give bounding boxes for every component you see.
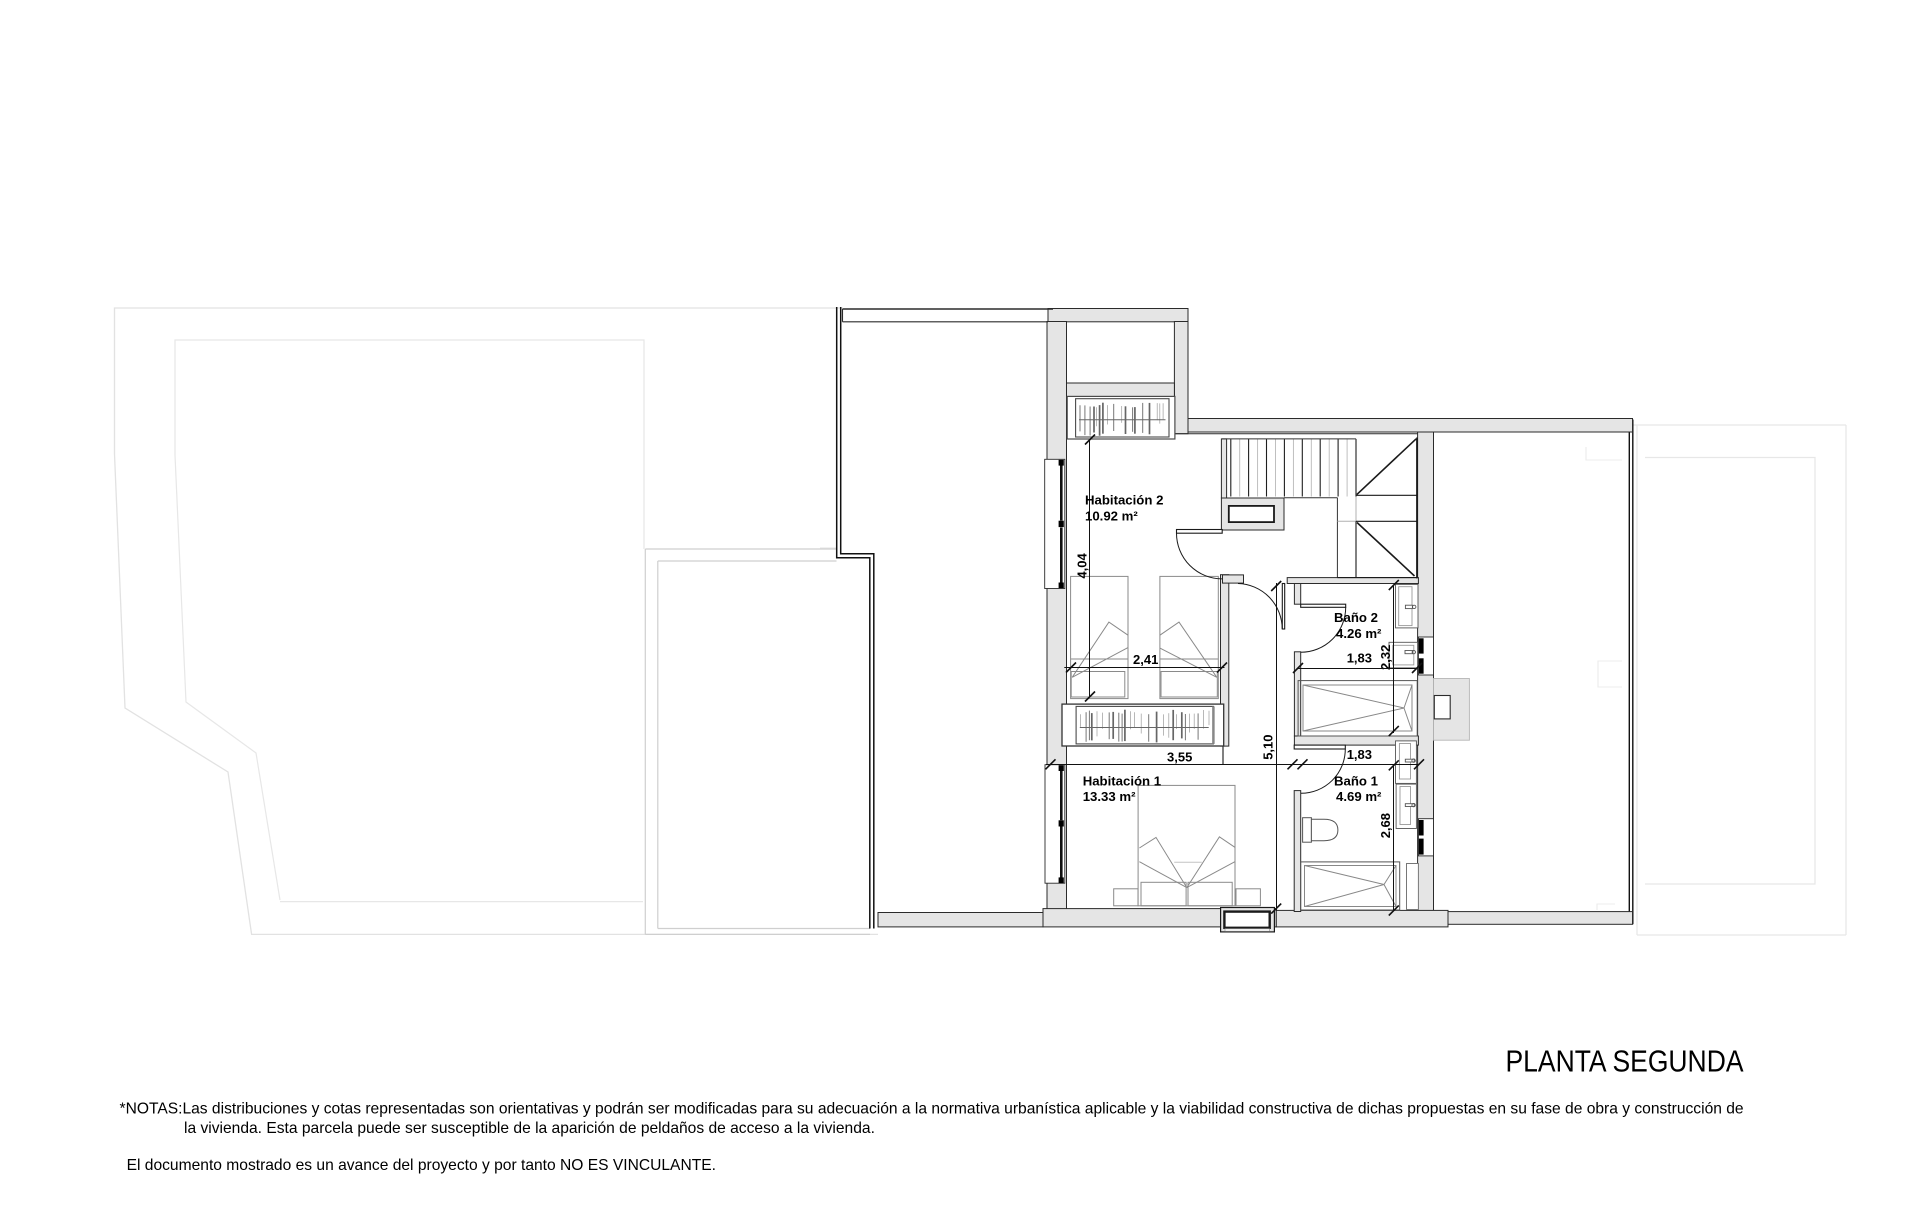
svg-text:2,32: 2,32 (1378, 645, 1393, 670)
svg-text:4.26 m²: 4.26 m² (1336, 626, 1382, 641)
svg-text:Baño 1: Baño 1 (1334, 773, 1378, 788)
svg-text:1,83: 1,83 (1347, 747, 1372, 762)
svg-text:Habitación 1: Habitación 1 (1083, 773, 1161, 788)
svg-text:3,55: 3,55 (1167, 750, 1192, 765)
svg-text:5,10: 5,10 (1260, 734, 1275, 759)
svg-text:Habitación 2: Habitación 2 (1085, 492, 1163, 507)
svg-text:2,41: 2,41 (1133, 652, 1158, 667)
svg-text:PLANTA SEGUNDA: PLANTA SEGUNDA (1506, 1045, 1745, 1079)
svg-text:4.69 m²: 4.69 m² (1336, 789, 1382, 804)
svg-text:la vivienda. Esta parcela pued: la vivienda. Esta parcela puede ser susc… (184, 1120, 875, 1137)
svg-text:2,68: 2,68 (1378, 813, 1393, 838)
svg-text:El documento mostrado es un av: El documento mostrado es un avance del p… (127, 1157, 716, 1174)
svg-text:13.33 m²: 13.33 m² (1083, 789, 1136, 804)
svg-text:10.92 m²: 10.92 m² (1085, 508, 1138, 523)
svg-text:Baño 2: Baño 2 (1334, 610, 1378, 625)
svg-text:4,04: 4,04 (1075, 553, 1090, 579)
svg-text:1,83: 1,83 (1347, 651, 1372, 666)
svg-text:*NOTAS:Las distribuciones y co: *NOTAS:Las distribuciones y cotas repres… (120, 1101, 1744, 1118)
